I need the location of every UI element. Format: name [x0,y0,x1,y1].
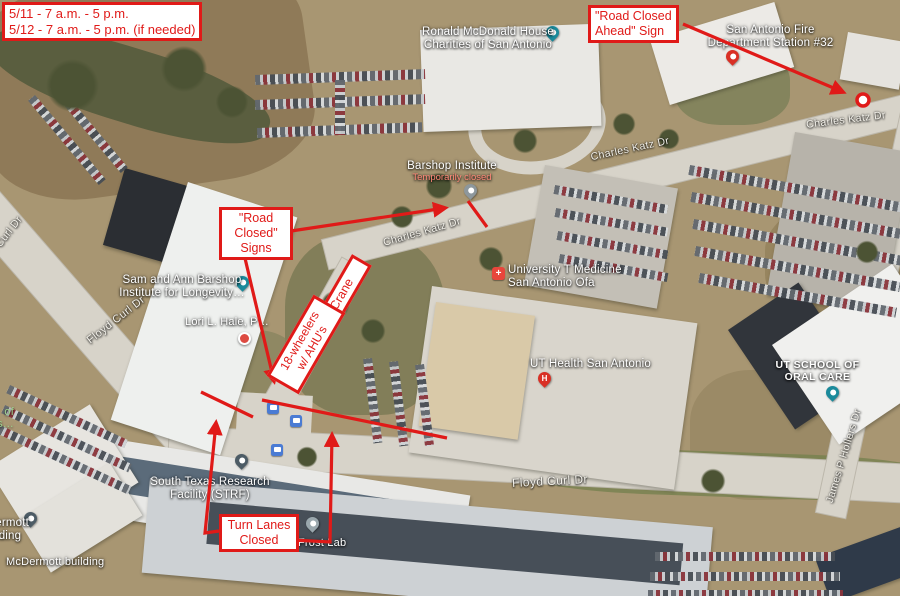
arrow-down-to-intersection [244,254,274,381]
road-closed-signs-callout: "Road Closed" Signs [219,207,293,260]
road-closed-ahead-callout: "Road Closed Ahead" Sign [588,5,679,43]
turn-lanes-closed-callout: Turn Lanes Closed [219,514,299,552]
annotation-arrows-overlay [0,0,900,603]
arrow-road-closed-ahead [683,24,843,92]
closure-bar-charles-katz [468,201,487,227]
annotated-satellite-map: + H Ronald McDonald House Charities of S… [0,0,900,603]
turn-lane-arrow-left [205,423,219,533]
closure-bar-floyd-curl-west [201,392,253,417]
road-closed-ahead-sign-marker [857,94,869,106]
bottom-white-margin [0,596,900,603]
schedule-note-box: 5/11 - 7 a.m. - 5 p.m. 5/12 - 7 a.m. - 5… [2,2,202,41]
closure-bar-floyd-curl-long [262,400,447,438]
arrow-to-barshop-closure [291,208,445,231]
